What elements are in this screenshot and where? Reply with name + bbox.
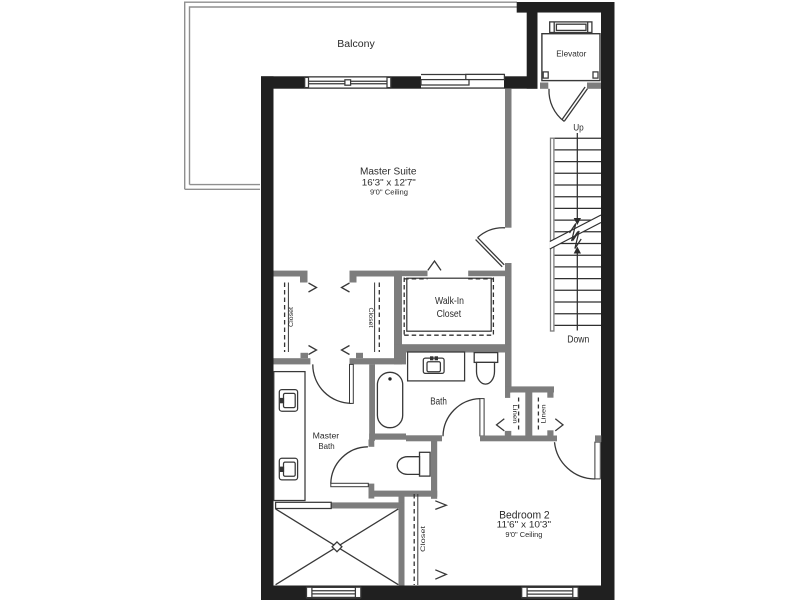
svg-text:Up: Up [573,122,584,132]
svg-text:Walk-In: Walk-In [435,296,464,307]
svg-text:Closet: Closet [288,307,295,327]
svg-text:Balcony: Balcony [337,39,375,50]
svg-text:Closet: Closet [367,308,374,328]
svg-text:9'0" Ceiling: 9'0" Ceiling [505,530,542,539]
svg-text:Down: Down [567,334,589,345]
svg-text:Closet: Closet [437,309,462,320]
svg-text:Master Suite: Master Suite [360,167,417,178]
svg-text:Linen: Linen [511,404,517,423]
svg-text:9'0" Ceiling: 9'0" Ceiling [370,188,408,197]
svg-text:Elevator: Elevator [556,50,586,59]
svg-text:11'6" x 10'3": 11'6" x 10'3" [497,520,551,530]
svg-text:Master: Master [313,432,340,441]
svg-text:Bath: Bath [318,442,334,451]
svg-text:Closet: Closet [420,526,427,552]
svg-text:Bath: Bath [430,396,447,407]
svg-text:Linen: Linen [542,404,548,423]
svg-text:16'3" x 12'7": 16'3" x 12'7" [362,178,416,188]
